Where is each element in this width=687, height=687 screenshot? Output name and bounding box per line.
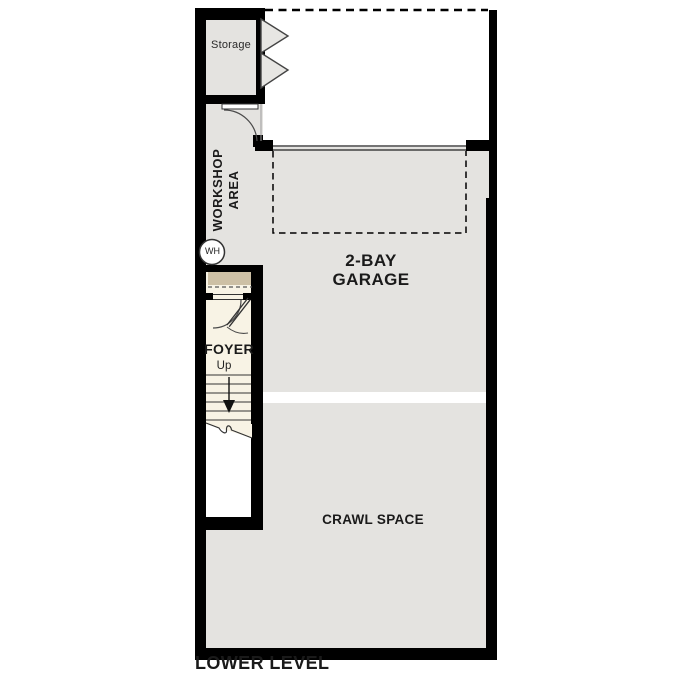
storage-bifold-doors-icon	[261, 19, 288, 88]
plan-title: LOWER LEVEL	[195, 653, 395, 674]
garage-label: 2-BAY GARAGE	[291, 251, 451, 289]
wall-garage-door-jamb-left	[255, 140, 273, 151]
wall-foyer-jamb-left	[204, 293, 213, 300]
storage-label: Storage	[206, 39, 256, 51]
wall-outer-top	[195, 8, 258, 20]
wall-outer-left	[195, 8, 206, 660]
floor-plan: Storage WORKSHOP AREA WH 2-BAY GARAGE FO…	[0, 0, 687, 687]
wall-outer-right-upper	[489, 10, 497, 198]
wall-foyer-jamb-right	[243, 293, 252, 300]
storage-room-floor	[206, 20, 256, 95]
foyer-label: FOYER	[202, 341, 256, 357]
wall-garage-door-jamb-right	[466, 140, 490, 151]
wall-storage-bottom	[195, 95, 265, 104]
crawl-space-floor-left	[206, 530, 263, 648]
stairwell-void	[206, 424, 252, 517]
wall-foyer-right	[251, 266, 263, 530]
wall-storage-right	[256, 8, 265, 97]
stairs-up-label: Up	[202, 360, 246, 372]
water-heater-label: WH	[200, 246, 225, 256]
garage-label-line2: GARAGE	[291, 270, 451, 289]
crawl-space-label: CRAWL SPACE	[293, 512, 453, 527]
workshop-label-line2: AREA	[226, 120, 242, 260]
entry-landing	[208, 272, 252, 285]
workshop-area-label: WORKSHOP AREA	[210, 120, 244, 260]
wall-stair-bottom	[195, 517, 263, 530]
workshop-label-line1: WORKSHOP	[210, 120, 226, 260]
wall-outer-right-lower	[486, 198, 497, 660]
garage-label-line1: 2-BAY	[291, 251, 451, 270]
